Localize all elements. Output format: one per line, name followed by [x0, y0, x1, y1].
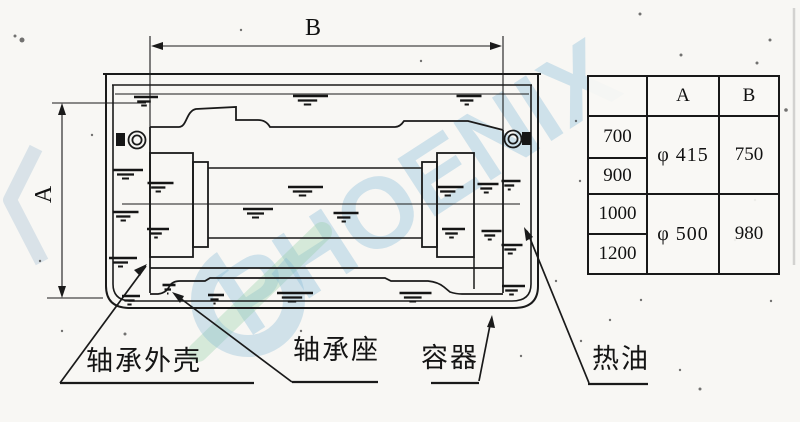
left-fitting-icon — [129, 132, 146, 149]
table-size-cell: 700 — [588, 116, 647, 158]
phoenix-logo-watermark — [10, 148, 322, 352]
arrowhead-down-icon — [58, 286, 66, 298]
scanned-technical-diagram: PHOENIX — [0, 0, 800, 422]
arrowhead-up-icon — [58, 103, 66, 115]
table-diameter-cell: φ 500 — [647, 194, 719, 274]
wall-fittings — [116, 131, 531, 149]
dimension-b — [151, 42, 502, 50]
leader-arrow-container-icon — [487, 315, 495, 328]
table-size-cell: 900 — [588, 158, 647, 194]
table-b-cell: 980 — [719, 194, 779, 274]
table-size-cell: 1000 — [588, 194, 647, 234]
leader-arrow-shell-icon — [134, 264, 147, 276]
table-corner-cell — [588, 76, 647, 116]
size-spec-table: A B 700 φ 415 750 900 1000 φ 500 980 120… — [587, 75, 780, 275]
dimension-a — [47, 103, 146, 298]
callout-underlines — [60, 382, 648, 384]
container-outline — [103, 74, 541, 308]
callout-bearing-seat: 轴承座 — [293, 336, 380, 366]
callout-hot-oil: 热油 — [592, 345, 650, 375]
table-header-b: B — [719, 76, 779, 116]
dimension-label-b: B — [305, 15, 321, 42]
table-header-a: A — [647, 76, 719, 116]
dimension-label-a: A — [31, 186, 58, 203]
callout-container: 容器 — [421, 344, 479, 374]
arrowhead-left-icon — [151, 42, 163, 50]
table-size-cell: 1200 — [588, 234, 647, 274]
right-fitting-pad — [522, 132, 531, 145]
callout-bearing-shell: 轴承外壳 — [86, 347, 202, 377]
arrowhead-right-icon — [490, 42, 502, 50]
left-fitting-pad — [116, 133, 125, 146]
table-b-cell: 750 — [719, 116, 779, 194]
right-fitting-icon — [505, 131, 522, 148]
table-diameter-cell: φ 415 — [647, 116, 719, 194]
watermark-chevron-icon — [10, 148, 42, 262]
